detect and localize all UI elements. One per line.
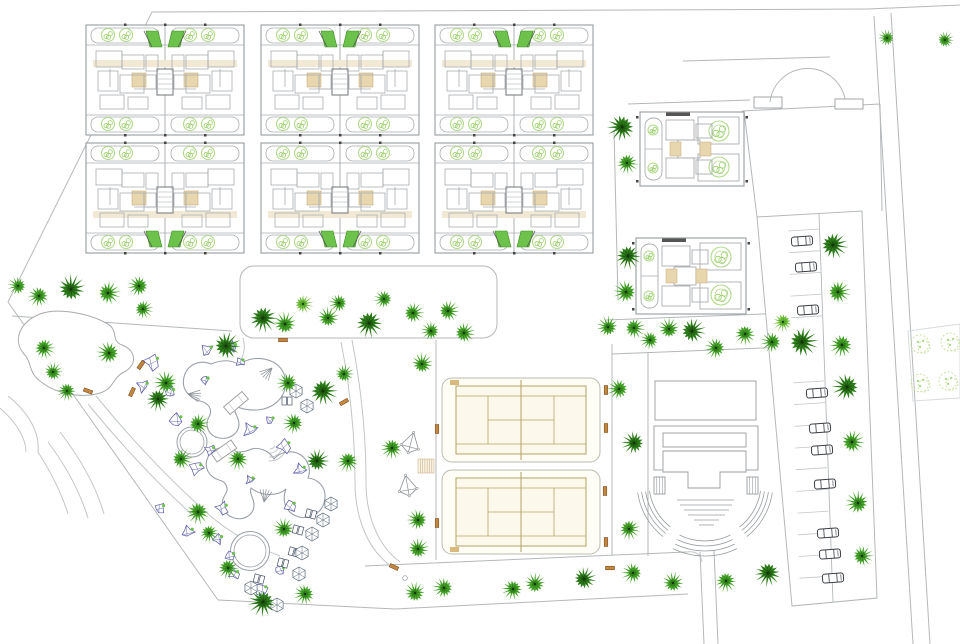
rock-plant-dot (191, 528, 194, 531)
site-plan (0, 0, 960, 644)
tree-trunk (800, 340, 803, 343)
rock-cluster (236, 358, 244, 366)
stair-core (332, 69, 348, 95)
survey-tick (513, 24, 516, 27)
survey-tick (339, 24, 342, 27)
survey-tick (748, 308, 751, 311)
bench (604, 424, 608, 433)
bush-leaf (922, 379, 924, 381)
tree-trunk (347, 460, 349, 462)
rock-plant-dot (199, 463, 202, 466)
tree-trunk (367, 321, 370, 324)
umbrella (325, 497, 337, 511)
bush-leaf (922, 340, 924, 342)
tree-trunk (672, 582, 674, 584)
tree-trunk (293, 422, 295, 424)
tree-trunk (417, 548, 419, 550)
duplex-core-pad (696, 269, 707, 283)
tree-trunk (316, 460, 319, 463)
tree-trunk (69, 287, 72, 290)
bench-seat (603, 487, 607, 496)
kite-post (417, 448, 420, 451)
survey-tick (513, 142, 516, 145)
bush-leaf (947, 339, 949, 341)
tree-trunk (886, 37, 888, 39)
apartment-block (261, 142, 419, 255)
tree-trunk (715, 347, 717, 349)
tree-trunk (633, 442, 636, 445)
tree-trunk (17, 285, 19, 287)
corridor-band (93, 60, 237, 67)
survey-tick (473, 252, 476, 255)
tree-trunk (831, 243, 834, 246)
car (797, 305, 819, 315)
bench-seat (604, 538, 608, 547)
bush-leaf (947, 383, 949, 385)
rock-plant-dot (162, 504, 165, 507)
stair-core (506, 69, 522, 95)
tree-trunk (107, 292, 110, 295)
survey-tick (553, 142, 556, 145)
rock-plant-dot (210, 346, 213, 349)
tree-trunk (633, 327, 635, 329)
rock-plant-dot (156, 357, 159, 360)
bush-leaf (919, 385, 921, 387)
tree-trunk (771, 341, 773, 343)
bush-leaf (949, 344, 951, 346)
survey-tick (632, 242, 635, 245)
stair-core (506, 187, 522, 213)
tree-trunk (837, 291, 840, 294)
tree-trunk (443, 587, 445, 589)
tree-trunk (625, 291, 628, 294)
tree-trunk (157, 398, 160, 401)
survey-tick (124, 24, 127, 27)
tree-trunk (284, 323, 287, 326)
corridor-band (268, 60, 412, 67)
duplex-building (636, 112, 748, 186)
bench (604, 538, 608, 547)
car (817, 528, 839, 538)
car (814, 479, 836, 489)
tree-trunk (338, 302, 340, 304)
entrance-gate-post (835, 99, 863, 109)
bench-seat (604, 386, 608, 395)
car-body (809, 423, 831, 433)
apartment-block (86, 24, 244, 137)
car-body (822, 573, 844, 583)
tree-trunk (430, 330, 432, 332)
bench (606, 566, 615, 570)
tree-trunk (782, 321, 784, 323)
survey-tick (746, 180, 749, 183)
tree-trunk (165, 382, 168, 385)
court-pad (450, 547, 459, 552)
umbrella (301, 399, 313, 413)
survey-tick (632, 308, 635, 311)
rock-plant-dot (234, 343, 237, 346)
rock-plant-dot (172, 388, 175, 391)
survey-tick (164, 252, 167, 255)
survey-tick (636, 180, 639, 183)
car-body (791, 236, 813, 246)
tree-trunk (668, 328, 670, 330)
tree-trunk (583, 578, 586, 581)
survey-tick (164, 24, 167, 27)
rock-plant-dot (253, 425, 256, 428)
survey-tick (204, 134, 207, 137)
survey-tick (164, 134, 167, 137)
duplex-core-pad (700, 142, 711, 156)
tree-trunk (944, 39, 946, 41)
survey-tick (339, 142, 342, 145)
bench (604, 386, 608, 395)
survey-tick (124, 252, 127, 255)
kite-post (416, 487, 419, 490)
bench-seat (435, 519, 439, 528)
survey-tick (124, 134, 127, 137)
tree-trunk (327, 317, 329, 319)
car-body (814, 479, 836, 489)
tree-trunk (744, 333, 746, 335)
entrance-gate-post (754, 97, 782, 108)
tree-trunk (412, 312, 414, 314)
survey-tick (513, 134, 516, 137)
survey-tick (746, 116, 749, 119)
bench (603, 487, 607, 496)
car-body (797, 305, 819, 315)
car (791, 236, 813, 246)
car-body (811, 445, 833, 455)
kite-post (412, 431, 415, 434)
rock-plant-dot (271, 416, 274, 419)
tree-trunk (283, 528, 285, 530)
tree-trunk (261, 316, 264, 319)
tennis-court (442, 378, 600, 462)
rock-plant-dot (212, 446, 215, 449)
tree-trunk (302, 303, 304, 305)
apartment-block (261, 24, 419, 137)
court-pad (450, 380, 459, 385)
umbrella (306, 527, 318, 541)
duplex-building (632, 238, 750, 314)
survey-tick (339, 252, 342, 255)
survey-tick (299, 24, 302, 27)
kite-post (407, 451, 410, 454)
tree-trunk (463, 332, 465, 334)
rock-plant-dot (251, 476, 254, 479)
tree-trunk (618, 388, 620, 390)
tree-trunk (38, 295, 40, 297)
tree-trunk (607, 326, 609, 328)
survey-tick (339, 134, 342, 137)
survey-tick (748, 242, 751, 245)
bench (279, 338, 288, 342)
lounger (282, 397, 286, 405)
tree-trunk (142, 308, 144, 310)
rock-plant-dot (232, 552, 235, 555)
survey-tick (553, 252, 556, 255)
tree-trunk (321, 389, 324, 392)
rock-plant-dot (220, 535, 223, 538)
survey-tick (473, 142, 476, 145)
survey-tick (164, 142, 167, 145)
tree-trunk (841, 344, 844, 347)
tree-trunk (512, 588, 514, 590)
kite-post (398, 490, 401, 493)
tree-trunk (287, 382, 289, 384)
tree-trunk (417, 519, 419, 521)
bush-leaf (919, 346, 921, 348)
car (811, 445, 833, 455)
rock-plant-dot (179, 415, 182, 418)
tree-trunk (237, 458, 239, 460)
kiddie-pool (231, 532, 270, 571)
survey-tick (204, 252, 207, 255)
bench-seat (606, 566, 615, 570)
tree-trunk (180, 458, 182, 460)
tree-trunk (304, 593, 306, 595)
survey-tick (379, 134, 382, 137)
bush-leaf (945, 378, 947, 380)
tree-trunk (43, 347, 45, 349)
apartment-block (86, 142, 244, 255)
survey-tick (379, 142, 382, 145)
survey-tick (204, 24, 207, 27)
tree-trunk (66, 390, 68, 392)
tree-trunk (845, 385, 848, 388)
umbrella (296, 546, 308, 560)
tree-trunk (620, 125, 623, 128)
tree-trunk (383, 298, 385, 300)
tree-trunk (421, 363, 423, 365)
tree-trunk (691, 330, 694, 333)
tree-trunk (138, 285, 140, 287)
bush-leaf (950, 377, 952, 379)
car-body (795, 262, 817, 272)
site-plan-svg (0, 0, 960, 644)
car-body (806, 388, 828, 398)
rock-plant-dot (206, 376, 209, 379)
amphitheater-hall (655, 381, 756, 420)
bush-leaf (952, 338, 954, 340)
rock-plant-dot (241, 358, 244, 361)
tree-trunk (627, 255, 630, 258)
bench-seat (279, 338, 288, 342)
tree-trunk (628, 528, 630, 530)
rock-plant-dot (146, 382, 149, 385)
survey-tick (299, 252, 302, 255)
survey-tick (379, 252, 382, 255)
kite-post (400, 443, 403, 446)
tree-trunk (534, 583, 536, 585)
tree-trunk (197, 511, 200, 514)
tree-trunk (343, 373, 345, 375)
stage-inner (663, 433, 746, 447)
kite-post (408, 495, 411, 498)
stair-core (157, 69, 173, 95)
duplex-roof-band (662, 239, 686, 243)
survey-tick (204, 142, 207, 145)
tree-trunk (261, 600, 264, 603)
survey-tick (513, 252, 516, 255)
survey-tick (636, 116, 639, 119)
tree-trunk (851, 441, 854, 444)
stair-core (157, 187, 173, 213)
bench (435, 519, 439, 528)
rock-plant-dot (225, 504, 228, 507)
kite-post (404, 474, 407, 477)
survey-tick (379, 24, 382, 27)
tree-trunk (626, 162, 628, 164)
tree-trunk (208, 532, 210, 534)
stair-core (332, 187, 348, 213)
tree-trunk (52, 371, 54, 373)
rock-plant-dot (303, 466, 306, 469)
bench (435, 425, 439, 434)
rock-plant-dot (264, 585, 267, 588)
apartment-block (435, 24, 593, 137)
apartment-block (435, 142, 593, 255)
tree-trunk (857, 502, 860, 505)
duplex-core-pad (670, 142, 681, 156)
survey-tick (124, 142, 127, 145)
bench-seat (435, 425, 439, 434)
car-body (817, 528, 839, 538)
car (795, 262, 817, 272)
car (822, 573, 844, 583)
tree-trunk (632, 572, 634, 574)
car (806, 388, 828, 398)
survey-tick (473, 134, 476, 137)
tree-trunk (391, 447, 393, 449)
tree-trunk (224, 344, 227, 347)
bench-seat (604, 424, 608, 433)
car (819, 549, 841, 559)
lounger (288, 397, 292, 405)
tree-trunk (414, 592, 416, 594)
corridor-band (442, 60, 586, 67)
survey-tick (553, 24, 556, 27)
duplex-core-pad (666, 269, 677, 283)
tree-trunk (227, 567, 229, 569)
tree-trunk (108, 352, 111, 355)
survey-tick (473, 24, 476, 27)
tree-trunk (861, 555, 863, 557)
umbrella (317, 513, 329, 527)
tree-trunk (649, 339, 651, 341)
tree-trunk (767, 572, 770, 575)
tree-trunk (197, 423, 199, 425)
duplex-roof-band (666, 113, 690, 117)
tennis-court (442, 470, 600, 554)
car-body (819, 549, 841, 559)
survey-tick (299, 134, 302, 137)
tree-trunk (447, 310, 449, 312)
survey-tick (299, 142, 302, 145)
tree-trunk (725, 580, 727, 582)
umbrella (293, 567, 305, 581)
rock-plant-dot (293, 502, 296, 505)
car (809, 423, 831, 433)
umbrella (245, 581, 257, 595)
wood-deck (418, 459, 434, 473)
survey-tick (553, 134, 556, 137)
bush-leaf (917, 380, 919, 382)
bush-leaf (917, 341, 919, 343)
rock-plant-dot (287, 441, 290, 444)
